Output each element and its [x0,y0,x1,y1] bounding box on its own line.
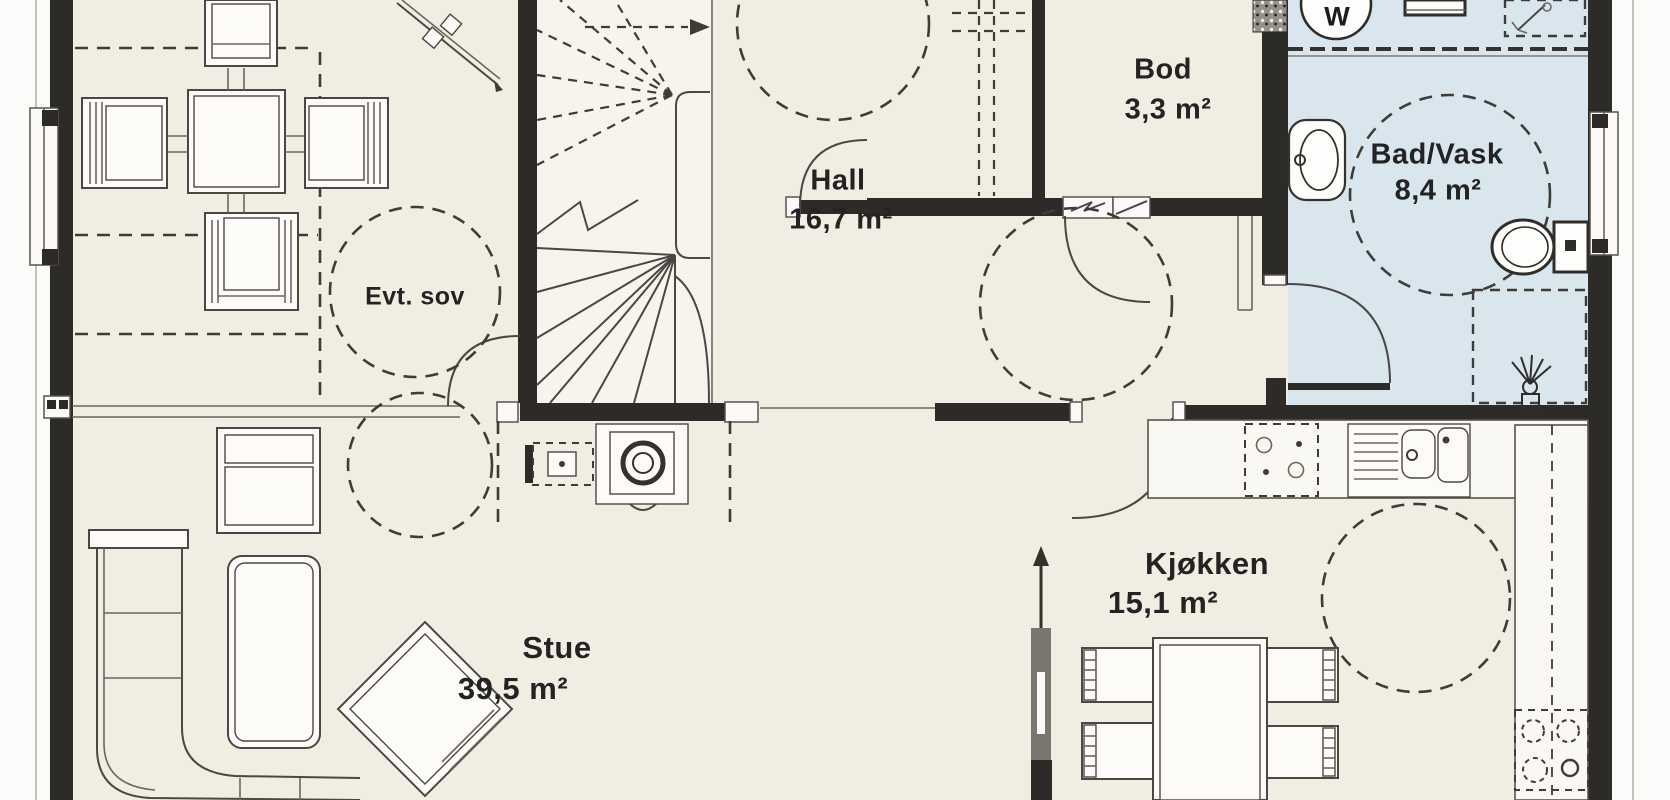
bathroom-sink [1289,120,1345,200]
door-leaf-symbol [1113,197,1150,218]
room-label-kjokken: Kjøkken [1145,546,1269,582]
room-area-stue: 39,5 m² [458,671,568,707]
chair-east [305,98,388,188]
counter-appliance [1405,0,1465,15]
washing-machine-label: W [1324,2,1349,33]
room-label-stue: Stue [522,630,591,666]
chair-west [82,98,167,188]
room-label-hall: Hall [810,165,865,198]
room-area-hall: 16,7 m² [789,204,892,237]
window-left [30,108,58,265]
chair [1267,648,1338,702]
room-label-bad-vask: Bad/Vask [1371,139,1504,172]
floor-plan-drawing [0,0,1670,800]
room-label-evt-sov: Evt. sov [365,283,465,312]
chair-north [205,0,277,66]
kitchen-table [1153,638,1267,800]
chaise-lounge [228,556,320,748]
chair-south [205,213,298,310]
room-area-bod: 3,3 m² [1125,94,1212,127]
chair [1082,648,1153,702]
window-right [1590,112,1618,255]
window-left-small [44,396,70,418]
room-area-bad-vask: 8,4 m² [1395,175,1482,208]
room-area-kjokken: 15,1 m² [1108,585,1218,621]
room-label-bod: Bod [1134,54,1192,87]
floor-plan: Evt. sov Hall 16,7 m² Bod 3,3 m² Bad/Vas… [0,0,1670,800]
armchair [217,428,320,533]
kitchen-sink [1348,424,1470,497]
chair [1267,726,1338,778]
toilet [1492,220,1588,274]
chair [1082,723,1153,779]
